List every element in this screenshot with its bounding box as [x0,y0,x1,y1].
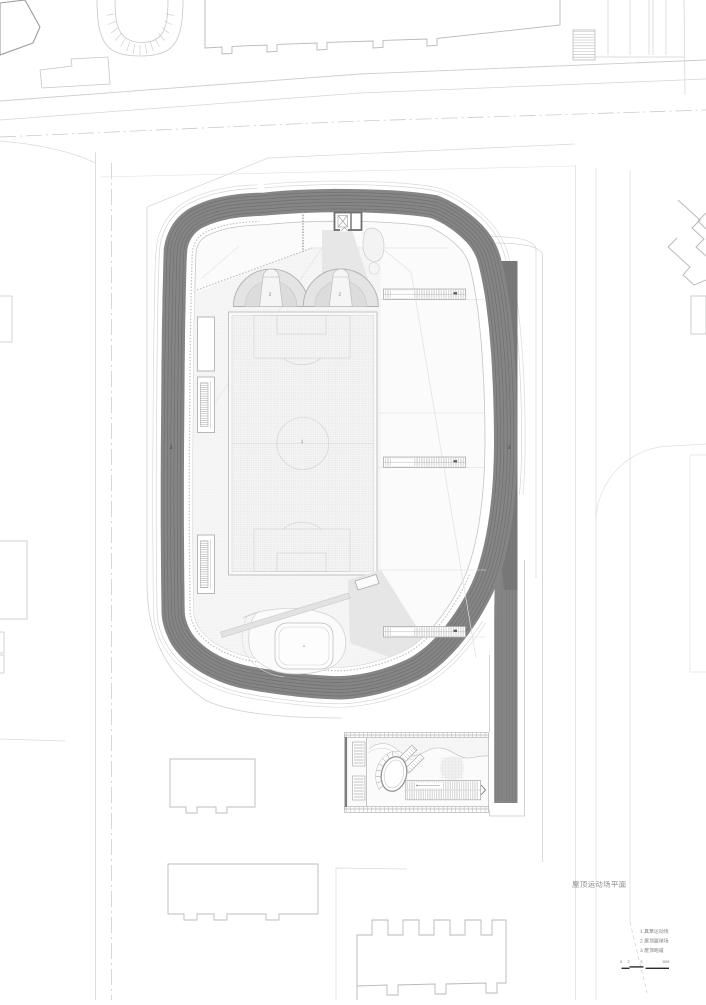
svg-text:10M: 10M [662,960,669,964]
svg-text:2: 2 [338,292,341,298]
svg-text:2: 2 [627,960,629,964]
svg-text:5: 5 [640,960,642,964]
svg-text:0: 0 [620,960,622,964]
svg-text:3: 3 [508,445,511,451]
svg-text:1 真草运动场: 1 真草运动场 [640,928,669,935]
svg-text:3 屋顶跑道: 3 屋顶跑道 [640,947,664,954]
svg-text:2: 2 [269,292,272,298]
svg-text:3: 3 [170,445,173,451]
svg-text:屋顶运动场平面: 屋顶运动场平面 [572,880,627,889]
svg-text:1: 1 [301,439,304,445]
svg-text:2 屋顶篮球场: 2 屋顶篮球场 [640,937,669,944]
